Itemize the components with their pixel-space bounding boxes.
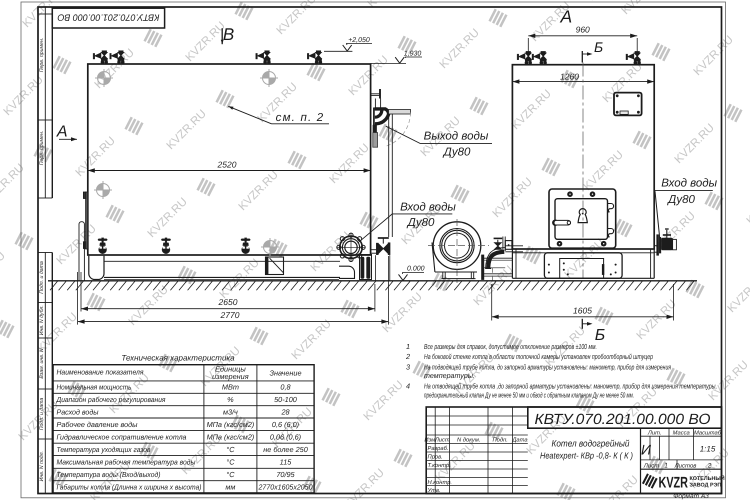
svg-text:Вход воды: Вход воды bbox=[661, 178, 717, 190]
svg-text:0.000: 0.000 bbox=[407, 266, 425, 273]
svg-text:+2,050: +2,050 bbox=[348, 37, 370, 44]
svg-text:Б: Б bbox=[594, 39, 603, 55]
svg-text:28: 28 bbox=[280, 407, 290, 416]
svg-text:температуры.: температуры. bbox=[424, 371, 475, 380]
svg-text:KVZR: KVZR bbox=[659, 475, 689, 492]
svg-text:0,06 (0,6): 0,06 (0,6) bbox=[270, 432, 301, 441]
svg-text:Лит.: Лит. bbox=[647, 431, 662, 437]
svg-text:50-100: 50-100 bbox=[274, 395, 297, 404]
svg-text:см. п. 2: см. п. 2 bbox=[276, 112, 325, 124]
svg-text:Формат А3: Формат А3 bbox=[673, 493, 709, 500]
svg-text:0,6 (6,0): 0,6 (6,0) bbox=[272, 420, 299, 429]
svg-text:1,930: 1,930 bbox=[404, 51, 422, 58]
svg-text:2520: 2520 bbox=[217, 159, 237, 169]
svg-text:измерения: измерения bbox=[212, 372, 249, 381]
svg-text:Значение: Значение bbox=[269, 369, 301, 378]
svg-text:МПа (кгс/см2): МПа (кгс/см2) bbox=[207, 420, 255, 429]
svg-text:Выход воды: Выход воды bbox=[424, 131, 489, 143]
svg-text:Диапазон рабочего регулировани: Диапазон рабочего регулирования bbox=[56, 395, 166, 404]
svg-text:0,8: 0,8 bbox=[280, 383, 291, 392]
svg-text:Подп.: Подп. bbox=[492, 437, 507, 444]
svg-text:1260: 1260 bbox=[560, 71, 579, 81]
svg-text:На боковой стенке котла в обла: На боковой стенке котла в области топочн… bbox=[424, 352, 653, 361]
svg-text:Ду80: Ду80 bbox=[666, 194, 695, 206]
svg-text:предохранительный клапан Ду н: предохранительный клапан Ду не менее 50 … bbox=[424, 391, 634, 400]
svg-text:Номинальная мощность: Номинальная мощность bbox=[57, 383, 132, 392]
svg-text:м3/ч: м3/ч bbox=[223, 407, 238, 416]
svg-text:Ду80: Ду80 bbox=[442, 147, 471, 159]
svg-text:не более 250: не более 250 bbox=[263, 445, 308, 454]
svg-text:Инв. N подл.: Инв. N подл. bbox=[39, 451, 45, 481]
svg-text:МПа (кгс/см2): МПа (кгс/см2) bbox=[207, 432, 255, 441]
svg-text:°С: °С bbox=[226, 470, 235, 479]
svg-text:Габариты котла (Длинна х ширин: Габариты котла (Длинна х ширина х высота… bbox=[57, 482, 202, 491]
svg-text:мм: мм bbox=[225, 482, 235, 491]
svg-text:2770: 2770 bbox=[220, 310, 240, 320]
svg-text:960: 960 bbox=[576, 24, 590, 34]
svg-text:В: В bbox=[223, 25, 234, 44]
svg-text:2770х1605х2050: 2770х1605х2050 bbox=[258, 482, 313, 491]
svg-text:Все размеры для справок, допус: Все размеры для справок, допустимое откл… bbox=[424, 342, 597, 351]
svg-text:3: 3 bbox=[406, 363, 410, 372]
svg-text:Расход воды: Расход воды bbox=[57, 407, 100, 416]
svg-text:Т.контр.: Т.контр. bbox=[428, 463, 451, 469]
svg-text:1: 1 bbox=[406, 342, 410, 351]
svg-text:Котел водогрейный: Котел водогрейный bbox=[552, 438, 630, 448]
svg-text:Перв. примен.: Перв. примен. bbox=[39, 131, 45, 165]
svg-text:КВТУ.070.201.00.000 ВО: КВТУ.070.201.00.000 ВО bbox=[535, 412, 712, 428]
svg-text:4: 4 bbox=[406, 382, 410, 391]
svg-text:1: 1 bbox=[664, 462, 668, 469]
svg-text:2: 2 bbox=[707, 462, 712, 469]
svg-text:Температура уходящих газов: Температура уходящих газов bbox=[57, 445, 151, 454]
svg-text:КВТУ.070.201.00.000 ВО: КВТУ.070.201.00.000 ВО bbox=[58, 13, 160, 23]
svg-text:Разраб.: Разраб. bbox=[428, 445, 449, 452]
svg-text:ЗАВОД РЭП: ЗАВОД РЭП bbox=[690, 483, 722, 489]
svg-text:Перв. примен.: Перв. примен. bbox=[39, 38, 45, 72]
svg-text:1605: 1605 bbox=[573, 305, 592, 315]
svg-text:Подп. и дата: Подп. и дата bbox=[39, 398, 45, 431]
svg-text:°С: °С bbox=[226, 458, 235, 467]
svg-text:Техническая характеристика: Техническая характеристика bbox=[121, 353, 235, 362]
svg-text:Гидравлическое сопративление к: Гидравлическое сопративление котла bbox=[57, 432, 187, 441]
svg-text:Heatexpert- КВр -0,8- К ( К ): Heatexpert- КВр -0,8- К ( К ) bbox=[540, 450, 633, 460]
svg-text:Лист: Лист bbox=[643, 462, 659, 469]
svg-text:1:15: 1:15 bbox=[700, 445, 716, 454]
svg-text:115: 115 bbox=[280, 458, 293, 467]
svg-text:А: А bbox=[559, 6, 572, 26]
svg-text:МВт: МВт bbox=[222, 383, 239, 392]
svg-text:Взам. инв. N: Взам. инв. N bbox=[39, 348, 45, 378]
svg-text:Дата: Дата bbox=[511, 438, 528, 444]
svg-text:°С: °С bbox=[226, 445, 235, 454]
svg-text:70/95: 70/95 bbox=[276, 470, 295, 479]
svg-text:Максимальная рабочая температу: Максимальная рабочая температура воды bbox=[57, 458, 197, 467]
svg-text:Масса: Масса bbox=[673, 431, 691, 437]
svg-text:Рабочее давление воды: Рабочее давление воды bbox=[57, 420, 139, 429]
svg-text:Подп. и дата: Подп. и дата bbox=[39, 261, 45, 294]
svg-text:Инв. N дубл.: Инв. N дубл. bbox=[39, 305, 45, 335]
svg-text:А: А bbox=[56, 123, 68, 140]
svg-text:Лист: Лист bbox=[434, 438, 450, 444]
svg-text:Листов: Листов bbox=[674, 462, 697, 469]
svg-text:2: 2 bbox=[405, 352, 410, 361]
svg-text:КОТЕЛЬНЫЙ: КОТЕЛЬНЫЙ bbox=[690, 475, 725, 482]
svg-text:Наименование показателя: Наименование показателя bbox=[57, 368, 144, 377]
svg-text:Масштаб: Масштаб bbox=[694, 430, 722, 437]
svg-text:Утв.: Утв. bbox=[427, 488, 441, 494]
svg-text:Ду80: Ду80 bbox=[406, 217, 435, 229]
svg-text:Н.контр.: Н.контр. bbox=[428, 480, 453, 486]
svg-text:Пров.: Пров. bbox=[428, 454, 443, 460]
svg-text:2650: 2650 bbox=[218, 297, 238, 307]
svg-text:Температура воды (Вход/выход): Температура воды (Вход/выход) bbox=[57, 470, 161, 479]
svg-text:%: % bbox=[227, 395, 234, 404]
svg-text:И: И bbox=[641, 441, 652, 457]
svg-text:N докум.: N докум. bbox=[457, 437, 480, 444]
svg-text:Вход воды: Вход воды bbox=[400, 201, 456, 213]
svg-text:На отводящей трубе котла ,до з: На отводящей трубе котла ,до запорной ар… bbox=[424, 382, 717, 391]
